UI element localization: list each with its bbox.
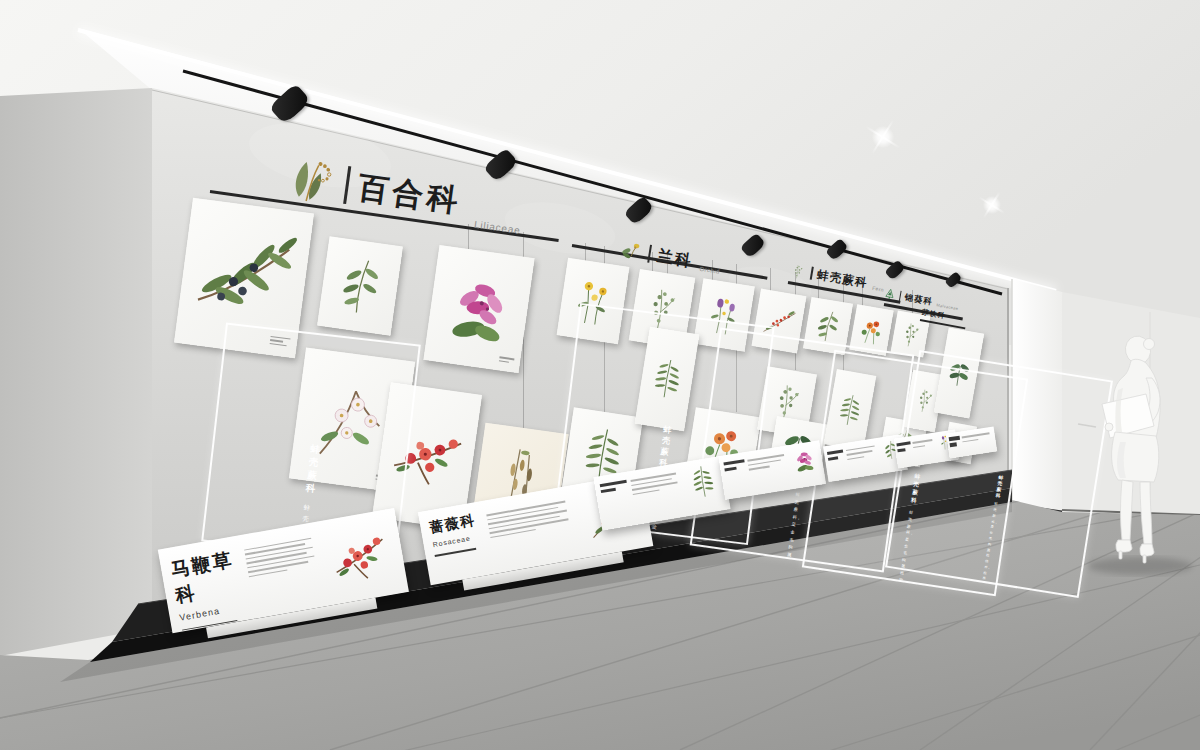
stand-title-zh: 马鞭草科 [169, 546, 243, 609]
stand-plant-illustration [788, 445, 820, 476]
info-panel-title: 蚌壳蕨科 [659, 424, 664, 468]
recessed-downlight [981, 194, 1003, 216]
section-title-en: Fern [872, 285, 885, 293]
info-panel-title: 蚌壳蕨科 [995, 474, 999, 498]
stand-description [846, 442, 878, 463]
stand-plant-illustration [321, 519, 397, 592]
section-title-zh: 兰科 [656, 248, 694, 269]
section-title-zh: 百合科 [356, 172, 463, 217]
stand-title-rule [435, 548, 477, 557]
fern-icon [789, 262, 807, 280]
plant-illustration [853, 307, 890, 351]
stand-plant-illustration [682, 462, 723, 501]
stand-title-sketch [827, 447, 845, 464]
stand-description [486, 497, 573, 541]
plant-illustration [324, 242, 396, 327]
info-panel-title: 蚌壳蕨科 [305, 443, 311, 495]
stand-title-sketch [599, 477, 627, 496]
recessed-downlight [869, 123, 897, 151]
family-info-panel: 蚌壳蕨科 蚌壳蕨科，是金毛狗属植物种，植株高大，密被金黄色长柔毛。孢子囊群生于叶… [885, 350, 1113, 598]
stand-description [630, 470, 681, 499]
stand-title-sketch [948, 434, 962, 450]
lily-logo-icon [284, 152, 339, 212]
stand-description [912, 436, 934, 451]
stand-description [747, 451, 787, 473]
poster-caption [499, 354, 515, 365]
orchid-icon [618, 238, 643, 263]
plant-illustration [432, 253, 526, 363]
stand-description [243, 534, 319, 580]
pine-icon [883, 287, 897, 301]
stand-title-sketch [896, 439, 912, 455]
poster-artwork [317, 236, 403, 335]
mannequin-figure [1088, 330, 1188, 570]
header-divider [899, 291, 902, 301]
header-divider [343, 166, 351, 204]
stand-description [961, 429, 992, 445]
poster-artwork [423, 245, 534, 373]
header-divider [810, 267, 814, 280]
exhibition-hall-render: 百合科 Liliaceae 兰科 Orchid 蚌壳蕨科 Fern 锦葵科 Ma… [0, 0, 1200, 750]
stand-title-sketch [723, 456, 746, 474]
header-divider [647, 245, 652, 263]
